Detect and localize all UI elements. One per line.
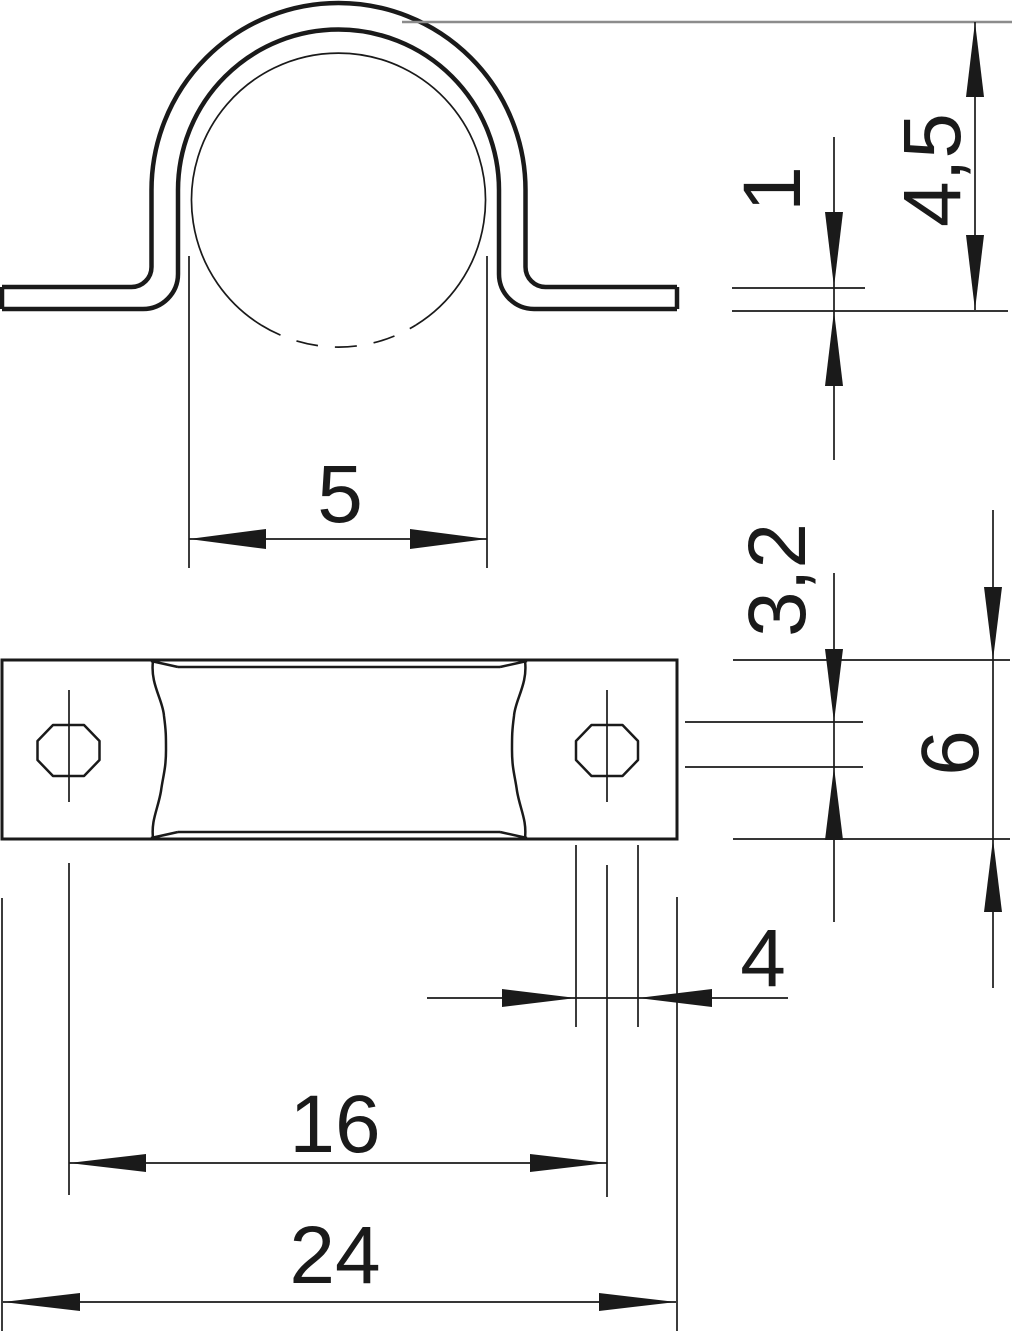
arrow-up-icon xyxy=(984,839,1002,912)
saddle-joint xyxy=(500,661,527,667)
dimension-hole-spacing: 16 xyxy=(69,863,607,1197)
arrow-left-icon xyxy=(69,1154,146,1172)
arrow-right-icon xyxy=(502,989,576,1007)
pipe-circle-dashed xyxy=(261,325,416,347)
arrow-left-icon xyxy=(189,529,266,549)
pipe-clamp-drawing: 5 4,5 1 xyxy=(0,0,1024,1333)
plan-view xyxy=(2,660,677,839)
saddle-left-bend-line xyxy=(153,661,166,838)
front-view-inner-profile xyxy=(2,30,677,309)
arrow-left-icon xyxy=(638,989,712,1007)
saddle-joint xyxy=(500,832,527,838)
arrow-right-icon xyxy=(410,529,487,549)
arrow-up-icon xyxy=(966,22,984,97)
arrow-up-icon xyxy=(825,767,843,840)
dimension-label-inner-width: 5 xyxy=(317,449,363,540)
dimension-overall-height: 4,5 xyxy=(402,22,1012,311)
dimension-slot-width: 3,2 xyxy=(685,523,1010,922)
arrow-left-icon xyxy=(3,1293,80,1311)
saddle-joint xyxy=(151,661,178,667)
arrow-up-icon xyxy=(825,311,843,386)
dimension-label-thickness: 1 xyxy=(727,166,818,212)
dimension-label-overall-length: 24 xyxy=(289,1210,380,1301)
dimension-strap-width: 6 xyxy=(905,510,1002,988)
technical-drawing-page: 5 4,5 1 xyxy=(0,0,1024,1333)
arrow-down-icon xyxy=(984,587,1002,660)
arrow-right-icon xyxy=(530,1154,607,1172)
dimension-label-overall-height: 4,5 xyxy=(887,113,978,227)
dimension-label-slot-length: 4 xyxy=(740,913,786,1004)
arrow-down-icon xyxy=(825,212,843,287)
arrow-down-icon xyxy=(825,649,843,722)
saddle-joint xyxy=(151,832,178,838)
dimension-label-slot-width: 3,2 xyxy=(732,523,823,637)
arrow-right-icon xyxy=(599,1293,676,1311)
front-view-outer-profile xyxy=(2,3,677,287)
arrow-down-icon xyxy=(966,235,984,310)
dimension-label-hole-spacing: 16 xyxy=(289,1079,380,1170)
front-view xyxy=(2,3,677,347)
dimension-thickness: 1 xyxy=(727,137,865,460)
saddle-right-bend-line xyxy=(512,661,525,838)
dimension-label-strap-width: 6 xyxy=(905,730,996,776)
pipe-circle-solid xyxy=(192,53,486,325)
